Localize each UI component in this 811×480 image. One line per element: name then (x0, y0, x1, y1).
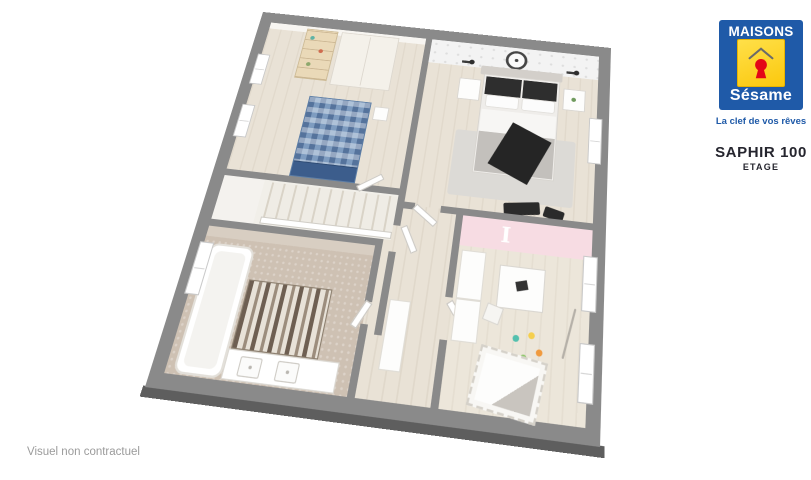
floorplan-3d-view: I (145, 12, 611, 447)
window-master (587, 118, 602, 165)
kids-desk (496, 265, 546, 314)
logo-yellow-square (737, 39, 785, 87)
kids-closet (456, 250, 487, 302)
shelf-item (318, 49, 323, 53)
pillow-right (521, 98, 555, 114)
plan-subtitle: ETAGE (706, 162, 811, 172)
keyhole-roof-icon (742, 44, 780, 82)
window-kids-b (577, 343, 595, 405)
laptop (515, 280, 528, 291)
plan-title: SAPHIR 100 (706, 144, 811, 161)
sink-left (236, 356, 263, 379)
wall-letter: I (500, 224, 512, 246)
brand-tagline: La clef de vos rêves (706, 116, 811, 127)
page: I (0, 0, 811, 480)
bedside-table (372, 106, 390, 121)
brand-name-top: MAISONS (728, 24, 793, 39)
kids-dresser (450, 298, 481, 344)
striped-rug (231, 279, 333, 359)
nightstand-left (457, 77, 482, 100)
plant-icon (571, 98, 576, 103)
disclaimer-text: Visuel non contractuel (27, 446, 140, 458)
shelf-item (310, 36, 315, 40)
wardrobe (329, 32, 399, 91)
shelf-item (305, 62, 310, 66)
brand-name-bottom: Sésame (730, 87, 792, 105)
pillow-left (485, 94, 520, 110)
roof-icon (750, 49, 773, 59)
sink-right (273, 361, 300, 384)
nightstand-right (562, 89, 585, 113)
brand-logo: MAISONS Sésame (719, 20, 803, 110)
crib-mattress (474, 353, 540, 417)
brand-column: MAISONS Sésame La clef de vos rêves SAPH… (706, 20, 811, 172)
window-kids-a (581, 256, 598, 313)
